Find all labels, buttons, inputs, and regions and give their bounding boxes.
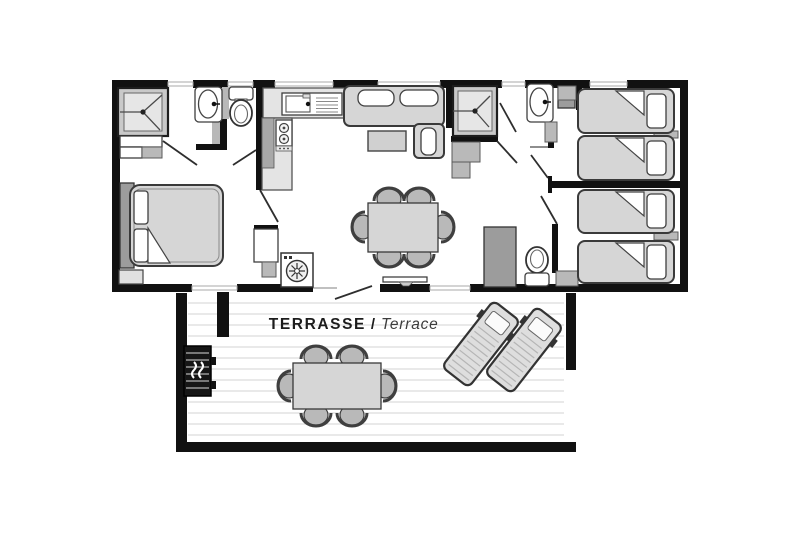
single-bed-4 <box>578 241 674 283</box>
terrace-label-primary: TERRASSE <box>269 316 366 333</box>
toilet-2 <box>525 247 549 286</box>
coffee-table <box>368 131 406 151</box>
toilet <box>229 87 253 126</box>
shower-2 <box>453 86 497 136</box>
stove <box>276 120 292 151</box>
single-bed-2 <box>578 136 674 180</box>
floor-plan-image: TERRASSE / Terrace <box>0 0 800 533</box>
bedside-shelf <box>119 270 143 284</box>
washbasin <box>195 87 222 122</box>
terrace-label-secondary: Terrace <box>381 316 439 333</box>
kitchen-cabinet <box>254 225 278 277</box>
terrace-door <box>313 286 372 299</box>
single-bed-3 <box>578 190 674 233</box>
bathroom-bench <box>120 136 162 158</box>
double-bed <box>130 185 223 266</box>
barbecue-grill <box>184 346 216 396</box>
kitchen-sink <box>282 93 342 115</box>
shower <box>118 88 168 136</box>
single-bed-1 <box>578 89 674 133</box>
tall-cabinet <box>484 227 516 287</box>
dining-table-with-6-chairs <box>352 188 454 267</box>
washing-machine <box>281 253 313 287</box>
terrace-label: TERRASSE / Terrace <box>269 316 439 333</box>
bathroom2-storage <box>452 142 480 178</box>
floor-plan: TERRASSE / Terrace <box>0 0 800 533</box>
hall-cabinet <box>556 271 578 286</box>
